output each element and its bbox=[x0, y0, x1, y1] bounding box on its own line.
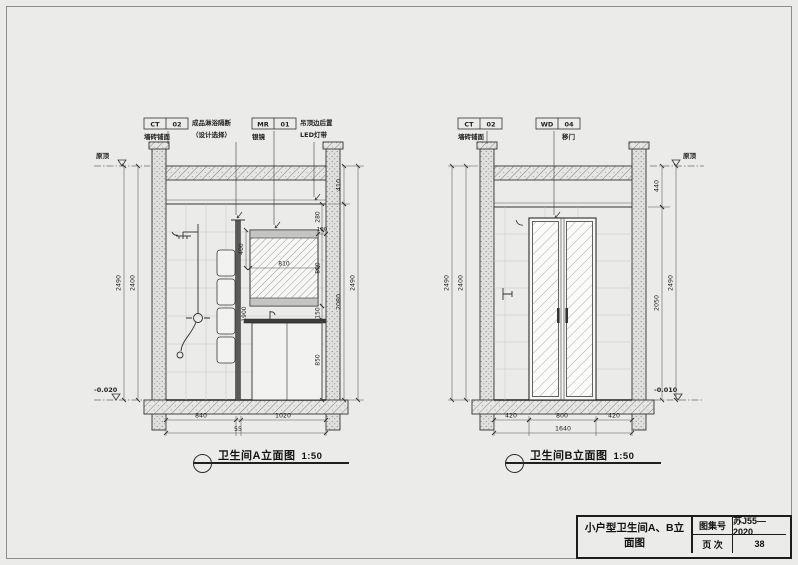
level-bottom-label: -0.020 bbox=[94, 386, 118, 394]
note-partition-1: 成品淋浴隔断 bbox=[192, 118, 232, 127]
dim-mirror-gap: 100 bbox=[317, 227, 328, 233]
sliding-door bbox=[529, 218, 596, 400]
dim-bottom-2: 800 bbox=[556, 413, 568, 420]
title-block: 小户型卫生间A、B立面图 图集号 苏J55—2020 页 次 38 bbox=[576, 515, 792, 559]
dim-right-total: 2490 bbox=[668, 275, 675, 291]
wall-cap-right bbox=[323, 142, 343, 149]
level-top-label: 原顶 bbox=[96, 151, 110, 160]
tag-ct-num: 02 bbox=[486, 121, 495, 129]
dim-bottom-2: 55 bbox=[234, 426, 242, 433]
caption-b-title: 卫生间B立面图 bbox=[530, 450, 607, 462]
detail-bubble-icon bbox=[505, 454, 524, 473]
tag-wd-label: 移门 bbox=[562, 132, 576, 141]
dim-bottom-1: 840 bbox=[195, 413, 207, 420]
tag-mr-code: MR bbox=[257, 121, 268, 129]
dim-bottom-3: 420 bbox=[608, 413, 620, 420]
caption-a-title: 卫生间A立面图 bbox=[218, 450, 295, 462]
atlas-number-label: 图集号 bbox=[692, 517, 732, 535]
tag-ct-label: 墙砖铺面 bbox=[144, 132, 171, 141]
wall-left bbox=[480, 148, 494, 430]
dim-stack-2: 800 bbox=[315, 262, 322, 274]
dim-right-mid: 2080 bbox=[336, 294, 343, 310]
caption-elevation-a: 卫生间A立面图1:50 bbox=[193, 450, 363, 476]
note-led-2: LED灯带 bbox=[300, 130, 327, 139]
elevation-a-drawing: 1900 810 100 400 280 800 150 850 CT 0 bbox=[86, 100, 406, 445]
paper-holder-icon bbox=[503, 288, 512, 300]
ceiling-slab bbox=[494, 166, 632, 180]
dim-right-top: 440 bbox=[654, 180, 661, 192]
elevation-b-drawing: CT 02 墙砖铺面 WD 04 移门 原顶 -0.010 2490 2400 … bbox=[410, 100, 710, 445]
dim-stack-3: 150 bbox=[315, 307, 322, 319]
wall-right bbox=[632, 148, 646, 430]
tag-ct-label: 墙砖铺面 bbox=[458, 132, 485, 141]
dim-stack-4: 850 bbox=[315, 354, 322, 366]
dim-bottom-1: 420 bbox=[505, 413, 517, 420]
dim-right-mid: 2050 bbox=[654, 295, 661, 311]
floor-slab bbox=[144, 400, 348, 414]
wall-cap-right bbox=[629, 142, 649, 149]
dim-mirror-width: 810 bbox=[278, 261, 290, 268]
page-number-value: 38 bbox=[732, 535, 786, 553]
atlas-number-value: 苏J55—2020 bbox=[732, 517, 786, 535]
page-number-label: 页 次 bbox=[692, 535, 732, 553]
drawing-sheet: 1900 810 100 400 280 800 150 850 CT 0 bbox=[0, 0, 798, 565]
ceiling-slab bbox=[166, 166, 326, 180]
tag-ct-code: CT bbox=[464, 121, 474, 129]
level-bottom-label: -0.010 bbox=[654, 386, 678, 394]
dim-bottom-3: 1020 bbox=[275, 413, 291, 420]
dim-left-inner: 2400 bbox=[130, 275, 137, 291]
faucet-icon bbox=[270, 311, 275, 319]
detail-bubble-icon bbox=[193, 454, 212, 473]
level-markers-b bbox=[650, 160, 704, 400]
tag-wd-code: WD bbox=[541, 121, 554, 129]
dim-stack-1: 280 bbox=[315, 211, 322, 223]
dim-left-inner: 2400 bbox=[458, 275, 465, 291]
dim-right-total: 2490 bbox=[350, 275, 357, 291]
dim-left-outer: 2490 bbox=[116, 275, 123, 291]
tag-ct-code: CT bbox=[150, 121, 160, 129]
dim-bottom-total: 1640 bbox=[555, 426, 571, 433]
wall-cap-left bbox=[149, 142, 169, 149]
tag-ct-num: 02 bbox=[172, 121, 181, 129]
tag-mr-num: 01 bbox=[280, 121, 290, 129]
note-partition-2: （设计选择） bbox=[192, 130, 231, 139]
hook-icon bbox=[516, 220, 523, 225]
wall-left bbox=[152, 148, 166, 430]
caption-a-scale: 1:50 bbox=[301, 451, 322, 462]
shower-set bbox=[172, 224, 210, 358]
caption-b-scale: 1:50 bbox=[613, 451, 634, 462]
caption-elevation-b: 卫生间B立面图1:50 bbox=[505, 450, 675, 476]
dim-right-top: 410 bbox=[336, 179, 343, 191]
sheet-title: 小户型卫生间A、B立面图 bbox=[578, 517, 692, 553]
dim-mirror-top: 400 bbox=[238, 243, 245, 255]
tag-wd-num: 04 bbox=[564, 121, 574, 129]
door-handle-right bbox=[565, 308, 568, 323]
note-led-1: 吊顶边后置 bbox=[300, 118, 333, 127]
door-handle-left bbox=[557, 308, 560, 323]
level-top-label: 原顶 bbox=[683, 151, 697, 160]
tag-mr-label: 银镜 bbox=[252, 132, 266, 141]
towel-hook-icon bbox=[172, 232, 178, 235]
dim-left-outer: 2490 bbox=[444, 275, 451, 291]
